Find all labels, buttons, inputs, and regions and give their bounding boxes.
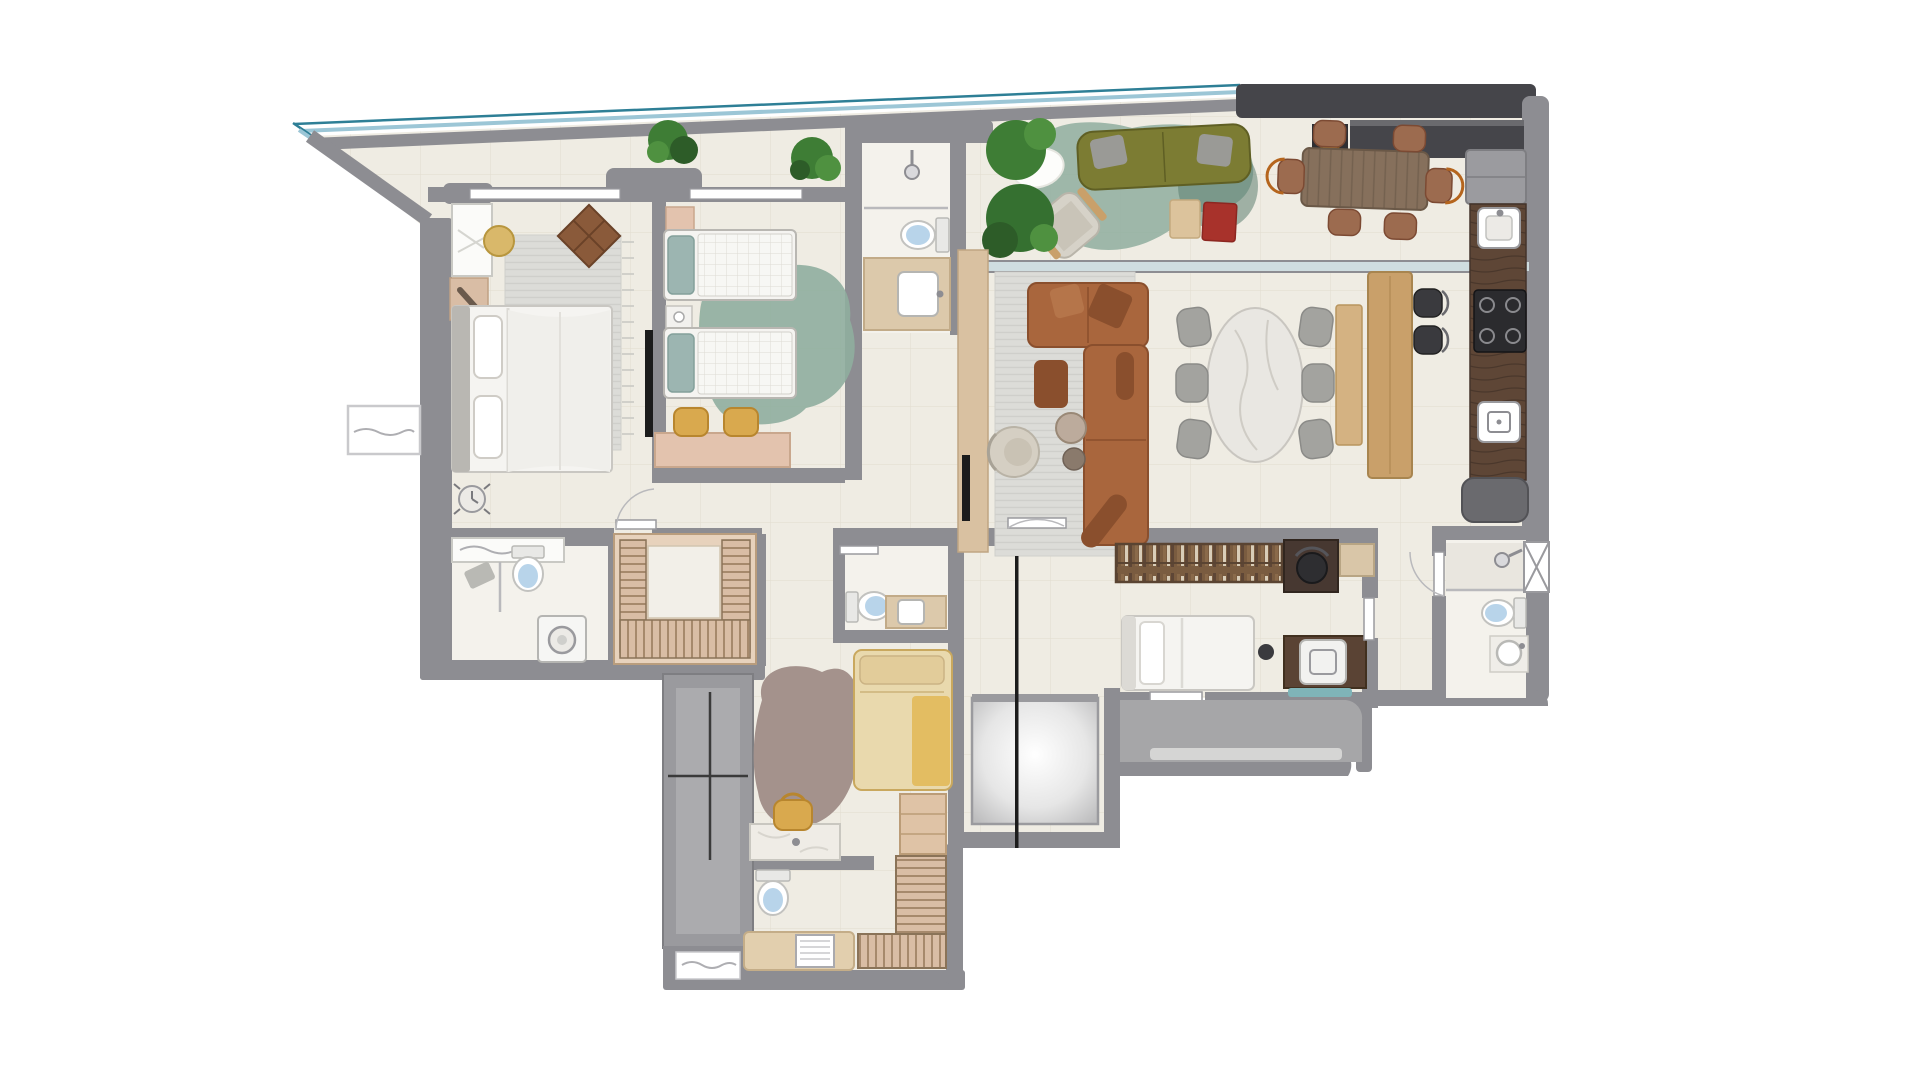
toilet bbox=[756, 870, 790, 915]
stool bbox=[1258, 644, 1274, 660]
cooktop bbox=[1474, 290, 1526, 352]
wall-clock bbox=[454, 484, 490, 514]
toilet bbox=[1482, 598, 1526, 628]
fixture-panel bbox=[796, 935, 834, 967]
faucet bbox=[937, 291, 944, 298]
desk-chair bbox=[674, 408, 708, 436]
toilet bbox=[512, 546, 544, 591]
dining-chair bbox=[1298, 418, 1335, 460]
pillow bbox=[860, 656, 944, 684]
teal-pillow bbox=[668, 236, 694, 294]
closet-rail-bottom bbox=[620, 620, 750, 658]
sofa-pillow bbox=[1089, 134, 1128, 170]
bathroom-3 bbox=[840, 546, 948, 630]
vanity-sink bbox=[898, 272, 938, 316]
round-table bbox=[1063, 448, 1085, 470]
master-bathroom bbox=[452, 538, 608, 662]
stair-shaft bbox=[663, 674, 753, 948]
walk-in-closet bbox=[614, 534, 756, 664]
toilet bbox=[901, 218, 949, 252]
wall-core-bottom bbox=[948, 832, 1120, 848]
oval-marble-table bbox=[1207, 308, 1303, 462]
master-door-leaf bbox=[616, 520, 656, 529]
faucet bbox=[792, 838, 800, 846]
bathtub bbox=[744, 932, 854, 970]
counter-endcap bbox=[1462, 478, 1528, 522]
service-balcony bbox=[1120, 700, 1362, 762]
boucle-armchair bbox=[988, 427, 1039, 477]
sliding-glass-door bbox=[973, 261, 1530, 272]
gourmet-chair bbox=[1313, 120, 1346, 147]
desk bbox=[655, 433, 790, 467]
door-leaf bbox=[1434, 552, 1444, 596]
gourmet-chair bbox=[1328, 209, 1361, 236]
wall-bath3-left bbox=[833, 546, 845, 638]
dining-chair bbox=[1176, 364, 1208, 402]
suite-bed bbox=[854, 650, 952, 790]
service-bed bbox=[1122, 616, 1254, 690]
pillow bbox=[474, 396, 502, 458]
pillow bbox=[474, 316, 502, 378]
olive-sofa bbox=[1077, 124, 1252, 191]
teal-pillow bbox=[668, 334, 694, 392]
wall-top-right-dark bbox=[1236, 84, 1536, 118]
elevator-door bbox=[972, 694, 1098, 702]
bar-stool bbox=[1414, 289, 1442, 317]
bathroom-social bbox=[862, 143, 950, 333]
ottoman bbox=[1034, 360, 1068, 408]
wall-tv bbox=[645, 330, 653, 437]
gold-stool bbox=[484, 226, 514, 256]
wall-bathR-left-b bbox=[1432, 596, 1446, 702]
door-leaf bbox=[840, 546, 878, 554]
twin-bed-1 bbox=[664, 230, 796, 300]
headboard bbox=[1122, 616, 1136, 690]
gourmet-chair bbox=[1384, 213, 1417, 240]
side-table-red bbox=[1202, 202, 1237, 242]
closet2-rail-right bbox=[896, 856, 946, 940]
gourmet-chair bbox=[1425, 168, 1452, 203]
wall-bathR-top bbox=[1432, 526, 1532, 540]
vanity-mirror bbox=[452, 538, 564, 562]
elevator-car bbox=[972, 698, 1098, 824]
dining-chair bbox=[1302, 364, 1334, 402]
floor-plan-page bbox=[0, 0, 1920, 1080]
bolster bbox=[1116, 352, 1134, 400]
wall-bath3-bottom bbox=[833, 628, 960, 643]
twin-bed-2 bbox=[664, 328, 796, 398]
pillow bbox=[1140, 622, 1164, 684]
toilet bbox=[846, 592, 890, 622]
gourmet-table bbox=[1301, 148, 1429, 210]
vanity-sink bbox=[898, 600, 924, 624]
washer-cabinet bbox=[1284, 636, 1366, 697]
dining-chair bbox=[1176, 418, 1213, 460]
dining-set bbox=[1176, 306, 1335, 462]
wall-bath1-top bbox=[845, 121, 993, 143]
master-bed bbox=[452, 306, 612, 472]
cup bbox=[674, 312, 684, 322]
suite-cabinet bbox=[900, 794, 946, 854]
wall-protrusion-right bbox=[946, 844, 963, 984]
window-ledge bbox=[348, 406, 420, 454]
dishwasher bbox=[1478, 402, 1520, 442]
washer bbox=[538, 616, 586, 662]
gourmet-chair bbox=[1277, 159, 1304, 194]
kitchen-sink bbox=[1478, 208, 1520, 248]
gourmet-chair bbox=[1393, 125, 1426, 152]
bar-stool bbox=[1414, 326, 1442, 354]
blanket bbox=[698, 234, 792, 296]
closet-island bbox=[648, 546, 720, 618]
living-tv bbox=[962, 455, 970, 521]
washer bbox=[1300, 640, 1346, 684]
round-table bbox=[1056, 413, 1086, 443]
counter-ledge bbox=[1336, 305, 1362, 445]
laundry-sink bbox=[1288, 688, 1352, 697]
desk-chair bbox=[724, 408, 758, 436]
hatched-window bbox=[1524, 542, 1549, 592]
balcony-sill bbox=[1150, 748, 1342, 760]
wall-left bbox=[420, 218, 452, 680]
shower-floor bbox=[1446, 543, 1526, 590]
blanket bbox=[698, 332, 792, 394]
dining-chair bbox=[1298, 306, 1335, 348]
floor-plan-canvas bbox=[0, 0, 1920, 1080]
section-line bbox=[1015, 556, 1019, 848]
closet2-rail-bottom bbox=[858, 934, 946, 968]
side-table-wood bbox=[1170, 200, 1200, 238]
corridor-door-leaf bbox=[1364, 598, 1374, 640]
side-cabinet bbox=[1340, 544, 1374, 576]
wall-bed2-bottom bbox=[652, 468, 845, 483]
round-sink bbox=[1490, 636, 1528, 672]
sofa-pillow bbox=[1196, 133, 1233, 167]
dining-chair bbox=[1176, 306, 1213, 348]
blanket bbox=[912, 696, 950, 786]
wall-core-right bbox=[1104, 688, 1120, 846]
shaft-niche bbox=[663, 946, 753, 986]
headboard bbox=[452, 306, 470, 472]
